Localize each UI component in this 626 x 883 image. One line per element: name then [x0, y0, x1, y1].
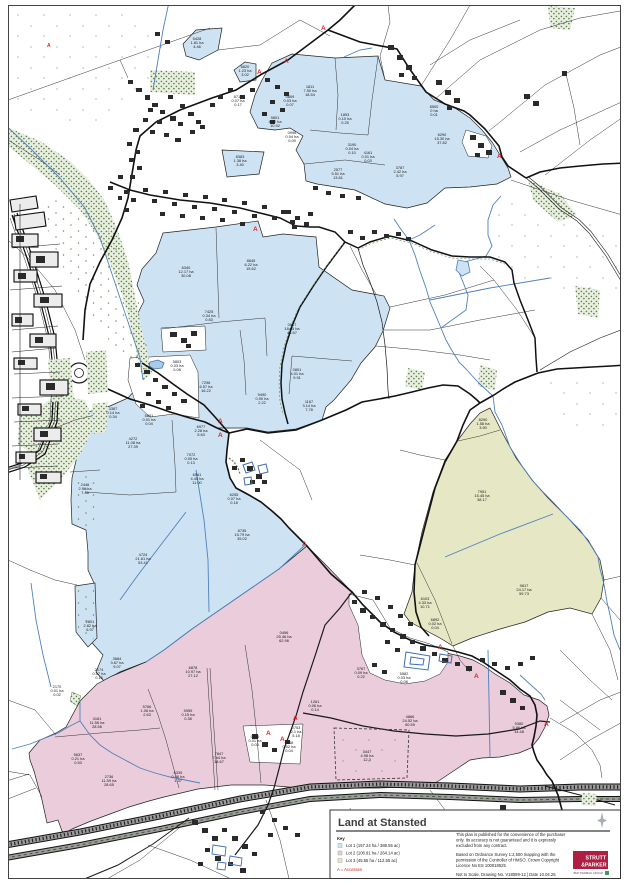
- svg-text:6.97: 6.97: [86, 627, 94, 632]
- svg-text:Based on Ordnance Survey 1:2,5: Based on Ordnance Survey 1:2,500 mapping…: [456, 852, 556, 857]
- svg-text:permission of the Controller o: permission of the Controller of HMSO. Cr…: [456, 858, 560, 863]
- svg-text:4.46: 4.46: [193, 44, 201, 49]
- svg-text:A = Accesses: A = Accesses: [337, 867, 362, 872]
- svg-text:A: A: [497, 153, 502, 160]
- svg-text:18.67: 18.67: [214, 759, 224, 764]
- svg-text:A: A: [266, 730, 271, 737]
- svg-text:0.17: 0.17: [234, 102, 242, 107]
- svg-text:28.65: 28.65: [104, 782, 114, 787]
- svg-text:Key: Key: [337, 836, 345, 841]
- svg-text:A: A: [257, 69, 262, 76]
- svg-text:11.00: 11.00: [192, 480, 202, 485]
- svg-text:A: A: [218, 432, 223, 439]
- svg-text:This plan is published for the: This plan is published for the convenien…: [456, 832, 566, 837]
- svg-text:14.48: 14.48: [514, 729, 524, 734]
- svg-text:0.01: 0.01: [430, 112, 438, 117]
- svg-text:A: A: [293, 715, 298, 722]
- svg-text:0.53: 0.53: [74, 760, 82, 765]
- svg-text:9.07: 9.07: [113, 664, 121, 669]
- svg-text:0.10: 0.10: [348, 150, 356, 155]
- svg-text:BNP PARIBAS GROUP: BNP PARIBAS GROUP: [574, 871, 604, 875]
- svg-text:0.16: 0.16: [95, 675, 103, 680]
- svg-text:0.02: 0.02: [53, 692, 61, 697]
- svg-text:10.92: 10.92: [270, 123, 280, 128]
- svg-text:A: A: [474, 673, 479, 680]
- svg-text:12.3: 12.3: [363, 757, 371, 762]
- svg-text:18.54: 18.54: [305, 92, 316, 97]
- svg-text:3.02: 3.02: [241, 72, 249, 77]
- svg-text:10.71: 10.71: [420, 604, 430, 609]
- svg-text:13.61: 13.61: [333, 175, 343, 180]
- svg-text:0.08: 0.08: [400, 679, 408, 684]
- svg-text:A: A: [47, 43, 51, 49]
- svg-text:0.03: 0.03: [364, 158, 372, 163]
- svg-text:62.96: 62.96: [279, 638, 289, 643]
- svg-text:59.73: 59.73: [519, 591, 529, 596]
- svg-text:A: A: [321, 25, 326, 32]
- svg-text:30.08: 30.08: [181, 273, 191, 278]
- svg-text:15.62: 15.62: [246, 266, 256, 271]
- svg-text:0.04: 0.04: [431, 625, 439, 630]
- svg-text:27.12: 27.12: [188, 673, 198, 678]
- svg-text:0.38: 0.38: [184, 716, 192, 721]
- svg-text:53.41: 53.41: [138, 560, 148, 565]
- svg-text:5.97: 5.97: [396, 173, 404, 178]
- svg-text:16.22: 16.22: [201, 388, 211, 393]
- svg-text:A: A: [218, 418, 223, 425]
- svg-text:A: A: [544, 721, 549, 728]
- svg-text:0.04: 0.04: [285, 748, 293, 753]
- svg-text:27.39: 27.39: [128, 444, 138, 449]
- svg-text:0.09: 0.09: [288, 138, 296, 143]
- svg-text:60.59: 60.59: [405, 722, 415, 727]
- svg-text:Licence No ES 100018525: Licence No ES 100018525: [456, 863, 506, 868]
- svg-text:A: A: [438, 644, 443, 651]
- svg-text:38.17: 38.17: [477, 497, 487, 502]
- svg-text:Lot 1 (157.24 ha / 388.55 ac): Lot 1 (157.24 ha / 388.55 ac): [346, 843, 400, 848]
- svg-text:37.82: 37.82: [437, 140, 447, 145]
- svg-text:0.18: 0.18: [230, 500, 238, 505]
- svg-text:9.91: 9.91: [293, 375, 301, 380]
- svg-text:0.03: 0.03: [251, 742, 259, 747]
- svg-text:only. Its accuracy is not guar: only. Its accuracy is not guaranteed and…: [456, 838, 557, 843]
- svg-text:0.22: 0.22: [357, 674, 365, 679]
- svg-text:A: A: [253, 226, 258, 233]
- svg-text:46.57: 46.57: [287, 330, 297, 335]
- svg-text:0.25: 0.25: [341, 120, 349, 125]
- svg-text:39.02: 39.02: [237, 536, 247, 541]
- svg-text:28.56: 28.56: [92, 724, 102, 729]
- svg-text:0.83: 0.83: [205, 317, 213, 322]
- svg-text:3.40: 3.40: [236, 162, 244, 167]
- svg-text:Not to Scale. Drawing No. V180: Not to Scale. Drawing No. V18089-12 | Da…: [456, 872, 556, 877]
- svg-text:2.63: 2.63: [143, 712, 151, 717]
- svg-text:5.63: 5.63: [197, 432, 205, 437]
- svg-text:1.37: 1.37: [174, 778, 182, 783]
- svg-text:7.78: 7.78: [305, 407, 313, 412]
- svg-text:Lot 3 (45.55 ha / 112.55 ac): Lot 3 (45.55 ha / 112.55 ac): [346, 858, 398, 863]
- svg-text:0.34: 0.34: [109, 414, 117, 419]
- svg-text:3.90: 3.90: [479, 425, 487, 430]
- svg-text:0.07: 0.07: [286, 102, 294, 107]
- svg-text:0.08: 0.08: [173, 367, 181, 372]
- svg-text:7.46: 7.46: [81, 490, 89, 495]
- svg-text:A: A: [284, 58, 289, 65]
- svg-text:Land at Stansted: Land at Stansted: [338, 817, 427, 829]
- svg-text:A: A: [302, 541, 307, 548]
- svg-text:excluded from any contract.: excluded from any contract.: [456, 843, 507, 848]
- svg-text:5.18: 5.18: [292, 733, 300, 738]
- svg-text:2.22: 2.22: [258, 400, 266, 405]
- svg-text:Lot 2 (106.91 ha / 264.14 ac): Lot 2 (106.91 ha / 264.14 ac): [346, 851, 400, 856]
- svg-text:0.13: 0.13: [187, 460, 195, 465]
- svg-text:&PARKER: &PARKER: [581, 863, 607, 869]
- svg-text:STRUTT: STRUTT: [586, 856, 607, 862]
- svg-text:0.04: 0.04: [145, 421, 153, 426]
- svg-text:0.14: 0.14: [311, 707, 319, 712]
